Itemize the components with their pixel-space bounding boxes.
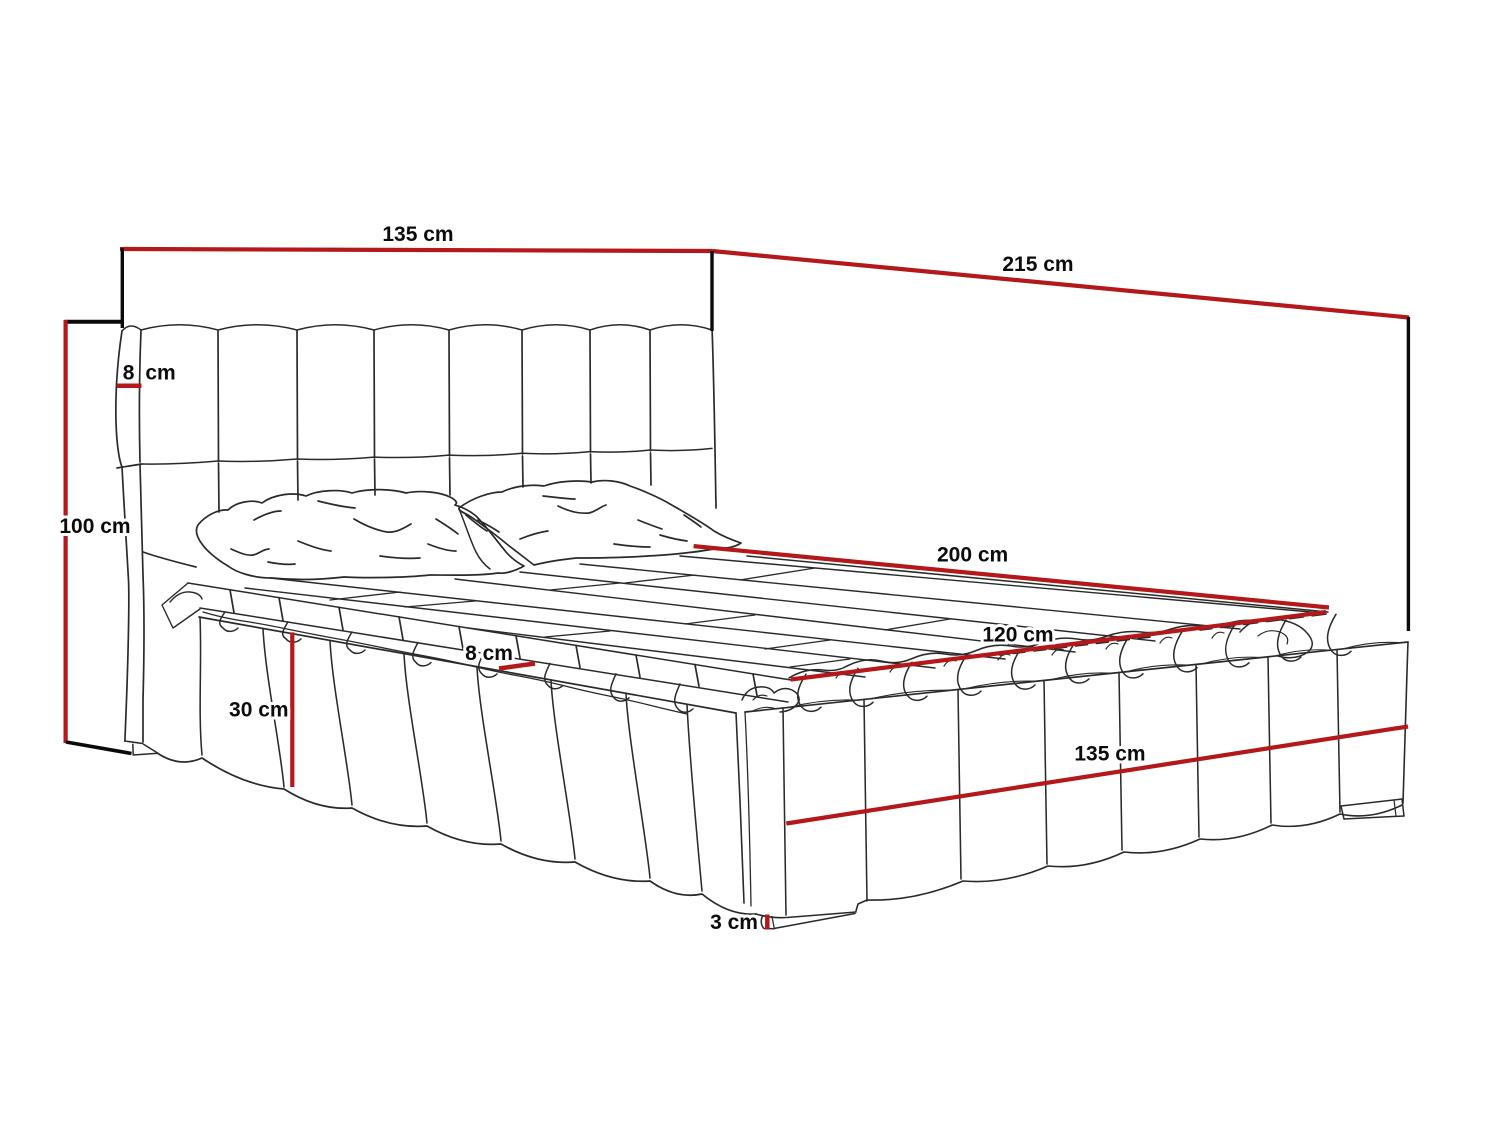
svg-text:135 cm: 135 cm — [1074, 743, 1145, 766]
svg-text:30 cm: 30 cm — [229, 698, 289, 721]
svg-text:215 cm: 215 cm — [1002, 253, 1073, 276]
svg-text:100 cm: 100 cm — [59, 515, 130, 538]
svg-text:120 cm: 120 cm — [982, 624, 1053, 647]
svg-text:200 cm: 200 cm — [937, 544, 1008, 567]
svg-text:8 cm: 8 cm — [465, 642, 513, 665]
svg-text:135 cm: 135 cm — [382, 223, 453, 246]
svg-text:3 cm: 3 cm — [710, 911, 758, 934]
svg-text:cm: cm — [145, 362, 175, 385]
svg-text:8: 8 — [123, 362, 135, 385]
